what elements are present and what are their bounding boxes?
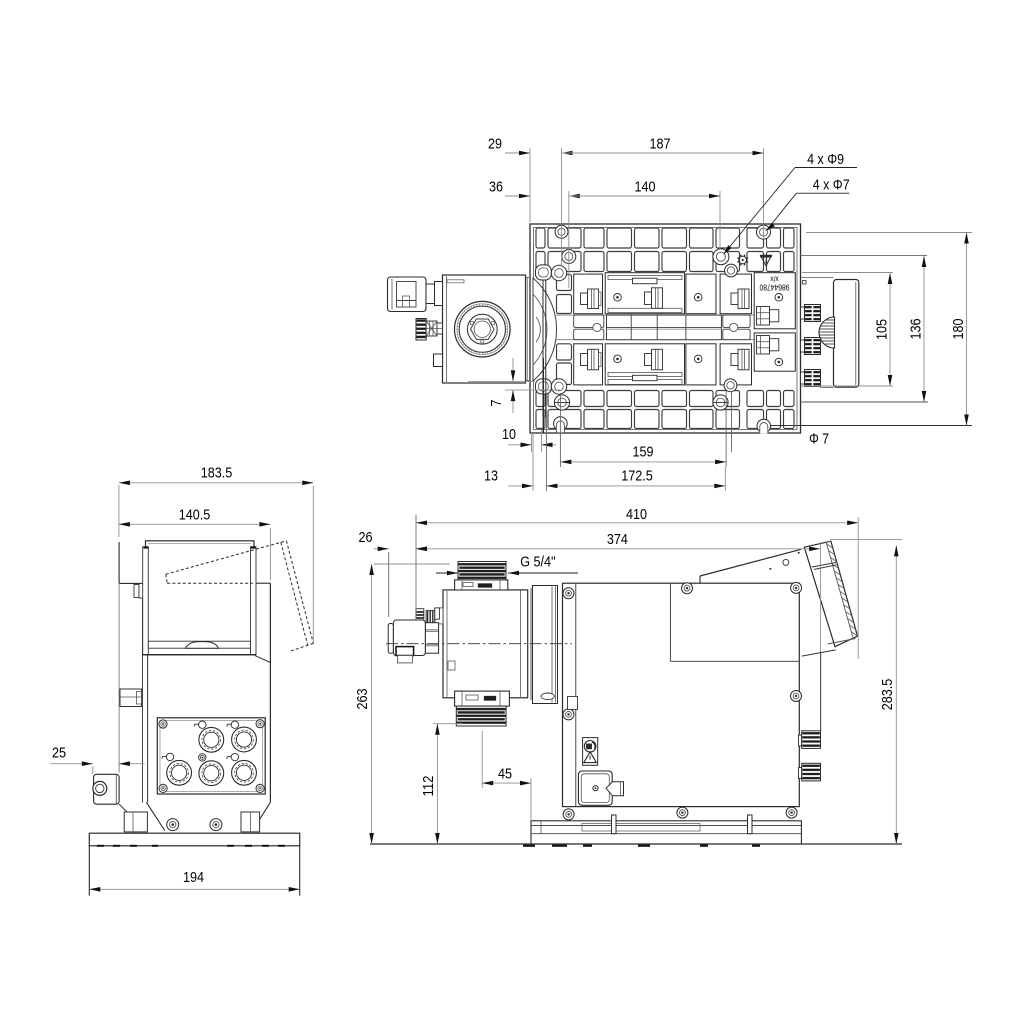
svg-text:4 x Φ9: 4 x Φ9: [807, 151, 844, 168]
svg-text:Φ 7: Φ 7: [809, 431, 829, 448]
svg-text:36: 36: [489, 179, 503, 196]
svg-text:105: 105: [874, 319, 891, 340]
svg-text:112: 112: [420, 776, 437, 797]
svg-text:25: 25: [52, 745, 66, 762]
svg-text:283.5: 283.5: [879, 679, 896, 711]
svg-text:183.5: 183.5: [201, 465, 233, 482]
svg-text:140.5: 140.5: [179, 506, 211, 523]
svg-text:172.5: 172.5: [621, 468, 653, 485]
svg-text:194: 194: [183, 869, 204, 886]
svg-text:G 5/4'': G 5/4'': [520, 554, 556, 571]
svg-text:26: 26: [359, 529, 373, 546]
svg-text:x/x: x/x: [770, 275, 779, 284]
svg-text:374: 374: [607, 531, 628, 548]
svg-text:187: 187: [650, 136, 671, 153]
svg-text:10: 10: [502, 426, 516, 443]
svg-text:140: 140: [635, 179, 656, 196]
svg-text:45: 45: [498, 765, 512, 782]
svg-text:29: 29: [488, 136, 502, 153]
svg-text:13: 13: [484, 468, 498, 485]
svg-text:136: 136: [908, 319, 925, 340]
svg-text:180: 180: [950, 319, 967, 340]
svg-text:263: 263: [354, 689, 371, 710]
svg-text:7: 7: [488, 400, 505, 407]
svg-text:410: 410: [626, 506, 647, 523]
svg-text:4 x Φ7: 4 x Φ7: [813, 177, 850, 194]
svg-text:159: 159: [633, 444, 654, 461]
